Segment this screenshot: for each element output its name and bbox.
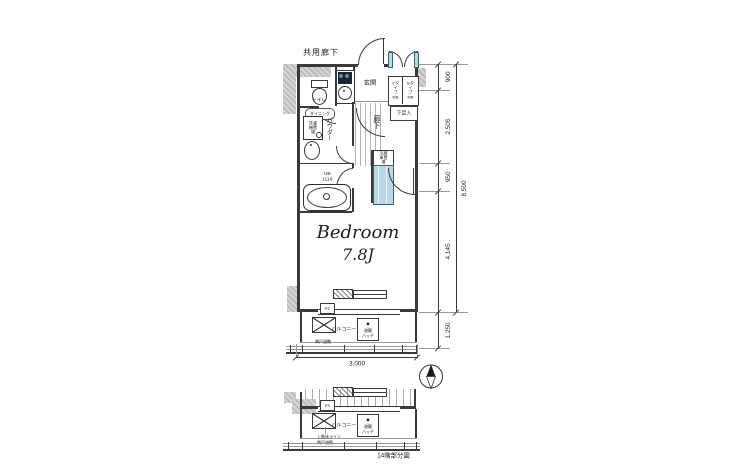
railing-post <box>344 345 345 353</box>
entrance-door-arc <box>358 38 385 65</box>
common-corridor-label: 共用廊下 <box>303 49 339 58</box>
subplan-railing-post <box>344 442 345 450</box>
toilet-tank <box>311 80 328 88</box>
balcony-wall <box>415 312 417 343</box>
wall-segment <box>297 64 358 67</box>
mb-door-panel <box>414 52 419 68</box>
subplan-wall-segment <box>300 406 318 409</box>
compass-icon <box>417 361 445 392</box>
wall-segment <box>300 309 318 312</box>
powder-door-arc <box>336 146 353 164</box>
genkan-step-line <box>353 101 388 102</box>
subplan-caption: 14階部分図 <box>366 452 420 461</box>
dim-line-segments <box>438 64 439 348</box>
hatch-label-2: ハッチ <box>358 429 378 434</box>
subplan-balcony-label: バルコニー <box>326 421 362 429</box>
neighbor-evac-note: 隣戸避難 <box>308 338 338 345</box>
bedroom-door-leaf <box>413 168 414 194</box>
dim-line <box>296 357 418 358</box>
subplan-railing-post <box>288 442 289 450</box>
subplan-railing-line <box>283 446 420 447</box>
dim-2505: 2,505 <box>444 107 453 147</box>
railing-post <box>374 345 375 353</box>
partition-line <box>352 102 354 146</box>
subplan-railing-post <box>416 442 417 450</box>
mb-door-panel <box>388 52 393 68</box>
faucet <box>343 90 345 92</box>
dim-line-overall <box>456 64 457 312</box>
balcony-wall <box>300 312 302 343</box>
bedroom-size: 7.8J <box>302 245 414 263</box>
subplan-railing-post <box>404 442 405 450</box>
partition-line <box>352 188 354 212</box>
subplan-balcony-wall <box>415 409 417 439</box>
partition-line <box>300 211 352 213</box>
window-sash <box>353 290 387 299</box>
bathtub-drain <box>323 193 330 200</box>
railing-line <box>286 346 418 347</box>
kitchen-sink <box>338 86 352 100</box>
subplan-window-sash <box>353 388 387 397</box>
dim-8500: 8,500 <box>460 169 469 209</box>
subplan-railing-post <box>302 442 303 450</box>
railing-post <box>302 345 303 353</box>
subplan-balcony-wall <box>300 409 302 439</box>
dim-900: 900 <box>444 57 453 97</box>
faucet <box>310 144 312 146</box>
powder-label: パウダー <box>322 112 334 146</box>
bath-label: UB1116 <box>316 170 338 184</box>
toilet-label: トイレ <box>308 96 330 105</box>
subplan-pipe-space: PS <box>320 400 335 411</box>
entrance-door-leaf <box>383 38 384 64</box>
exterior-wall-block <box>283 64 296 114</box>
ac-unit <box>333 289 353 299</box>
railing-line <box>286 352 418 354</box>
fridge-label: 冷蔵庫置場 <box>373 150 394 166</box>
subplan-railing-post <box>376 442 377 450</box>
subplan-ac-unit <box>333 387 353 397</box>
shoebox: 下足入 <box>390 106 418 121</box>
subplan-railing-line <box>283 443 420 444</box>
meter-box-c-label: Cタイプ MB <box>388 78 403 102</box>
dim-4145: 4,145 <box>444 232 453 272</box>
floorplan-canvas: 共用廊下 Cタイプ MB Bタイプ MB 下足入 玄関 トイレ 廊下 ダイニング <box>0 0 730 470</box>
railing-line <box>286 349 418 350</box>
bedroom-name: Bedroom <box>302 222 414 242</box>
railing-post <box>290 345 291 353</box>
genkan-label: 玄関 <box>354 78 386 88</box>
washbasin <box>304 141 320 160</box>
railing-post <box>402 345 403 353</box>
stove-burner <box>345 74 349 78</box>
dim-width: 3,000 <box>337 359 377 368</box>
subplan-railing-line <box>283 449 420 451</box>
wall-segment <box>400 309 416 312</box>
dim-1250: 1,250 <box>444 311 453 351</box>
dim-tick <box>414 354 420 360</box>
hatch-label-2: ハッチ <box>358 333 378 338</box>
meter-box-b-label: Bタイプ MB <box>403 78 418 102</box>
dim-950: 950 <box>444 157 453 197</box>
balcony-label: バルコニー <box>326 325 362 333</box>
pipe-space: PS <box>320 303 335 314</box>
stove-burner <box>339 74 343 78</box>
subplan-wall-segment <box>400 406 416 409</box>
